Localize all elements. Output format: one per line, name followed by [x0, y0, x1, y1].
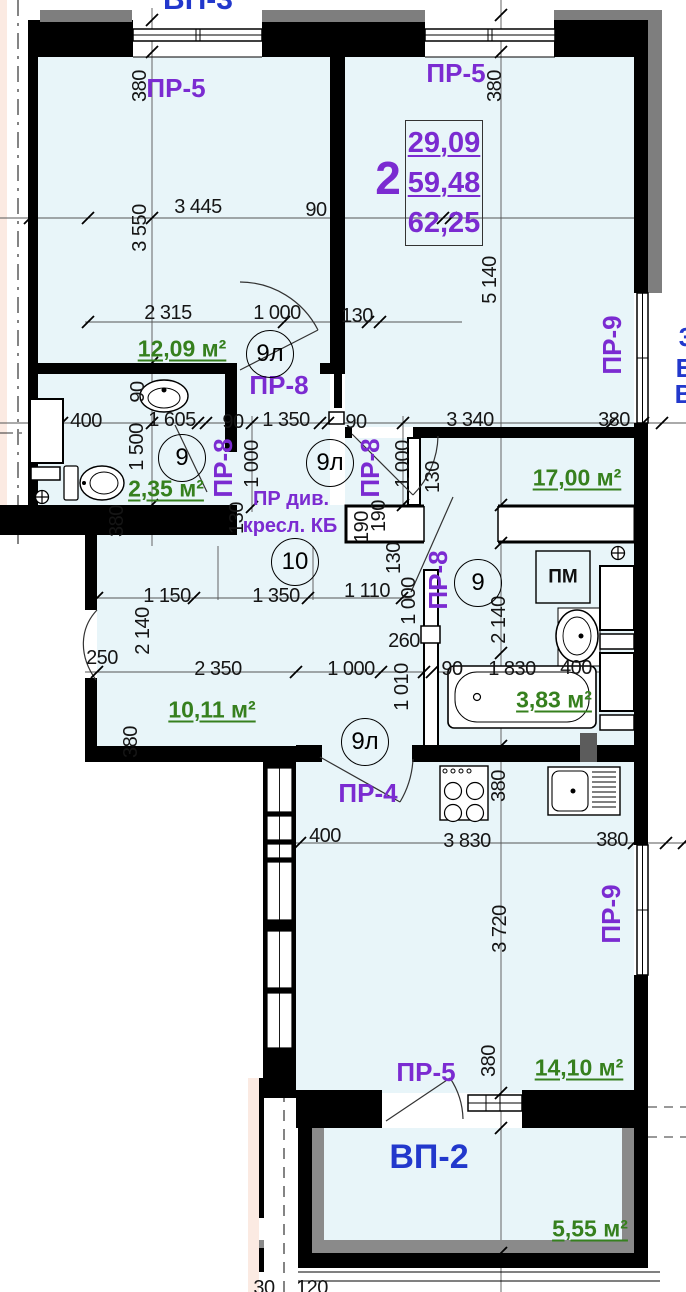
opening-label: ПР-5: [426, 60, 485, 86]
area-label: 12,09 м²: [138, 338, 227, 361]
dimension-label: 400: [560, 658, 592, 678]
dimension-label: 1 000: [253, 303, 301, 323]
dimension-label: 2 315: [144, 303, 192, 323]
balcony-label: ВП-2: [389, 1140, 468, 1174]
opening-label: ПР-8: [425, 550, 451, 609]
dimension-label: 3 340: [446, 410, 494, 430]
opening-label: ПР-5: [396, 1059, 455, 1085]
dimension-label: 1 000: [393, 440, 413, 488]
opening-label: ПР-9: [599, 315, 625, 374]
dimension-label: 380: [489, 770, 509, 802]
dimension-label: 130: [384, 542, 404, 574]
area-label: 14,10 м²: [535, 1057, 624, 1080]
opening-label: ПР-9: [598, 884, 624, 943]
area-label: 3,83 м²: [516, 689, 592, 712]
door-number: 9: [158, 434, 206, 482]
furniture-note: ПР див.: [253, 489, 329, 509]
door-number: 9: [454, 559, 502, 607]
dimension-label: 1 500: [127, 423, 147, 471]
opening-label: ПР-4: [338, 780, 397, 806]
door-number: 9л: [306, 439, 354, 487]
opening-label: ПР-5: [146, 75, 205, 101]
dimension-label: 120: [296, 1278, 328, 1292]
area-label: 2,35 м²: [128, 478, 204, 501]
dimension-label: 260: [388, 631, 420, 651]
dimension-label: 1 010: [392, 663, 412, 711]
dimension-label: 3 830: [443, 831, 491, 851]
fixture-label: ПМ: [548, 568, 577, 587]
dimension-label: 380: [485, 70, 505, 102]
dimension-label: 1 830: [488, 659, 536, 679]
dimension-label: 1 350: [252, 586, 300, 606]
furniture-note: кресл. КБ: [243, 516, 338, 536]
dimension-label: 2 140: [133, 607, 153, 655]
dimension-label: 380: [479, 1045, 499, 1077]
dimension-label: 400: [309, 826, 341, 846]
dimension-label: 90: [441, 659, 462, 679]
dimension-label: 90: [345, 412, 366, 432]
dimension-label: 1 150: [143, 586, 191, 606]
dimension-label: 1 000: [242, 440, 262, 488]
door-number: 10: [271, 538, 319, 586]
door-number: 9л: [341, 718, 389, 766]
area-label: 10,11 м²: [168, 699, 255, 722]
dimension-label: 90: [128, 381, 148, 402]
clipped-neighbor-text: В: [675, 381, 686, 407]
dimension-label: 130: [341, 306, 373, 326]
dimension-label: 190: [369, 500, 389, 532]
dimension-label: 2 350: [194, 659, 242, 679]
dimension-label: 2 140: [489, 596, 509, 644]
dimension-label: 30: [253, 1278, 274, 1292]
dimension-label: 3 720: [490, 905, 510, 953]
clipped-neighbor-text: Б: [676, 355, 686, 381]
dimension-label: 3 445: [174, 197, 222, 217]
dimension-label: 380: [596, 830, 628, 850]
dimension-label: 1 000: [327, 659, 375, 679]
dimension-label: 380: [121, 726, 141, 758]
dimension-label: 1 110: [344, 581, 390, 601]
door-number: 9л: [246, 330, 294, 378]
dimension-label: 90: [222, 412, 243, 432]
dimension-label: 1 350: [262, 410, 310, 430]
dimension-label: 1 000: [399, 577, 419, 625]
dimension-label: 380: [107, 505, 127, 537]
opening-label: ПР-8: [357, 438, 383, 497]
clipped-neighbor-text: 3: [679, 324, 686, 350]
balcony-label: ВП-3: [163, 0, 233, 15]
dimension-label: 130: [423, 461, 443, 493]
floor-plan-page: 29,09 59,48 62,25 2 3 445903803 5503805 …: [0, 0, 686, 1292]
dimension-label: 5 140: [480, 256, 500, 304]
labels-layer: 3 445903803 5503805 1402 3151 0001304001…: [0, 0, 686, 1292]
dimension-label: 380: [598, 410, 630, 430]
opening-label: ПР-8: [210, 438, 236, 497]
dimension-label: 400: [70, 411, 102, 431]
area-label: 5,55 м²: [552, 1218, 628, 1241]
dimension-label: 3 550: [130, 204, 150, 252]
dimension-label: 250: [86, 648, 118, 668]
dimension-label: 1 605: [148, 410, 196, 430]
area-label: 17,00 м²: [533, 467, 622, 490]
dimension-label: 90: [305, 200, 326, 220]
